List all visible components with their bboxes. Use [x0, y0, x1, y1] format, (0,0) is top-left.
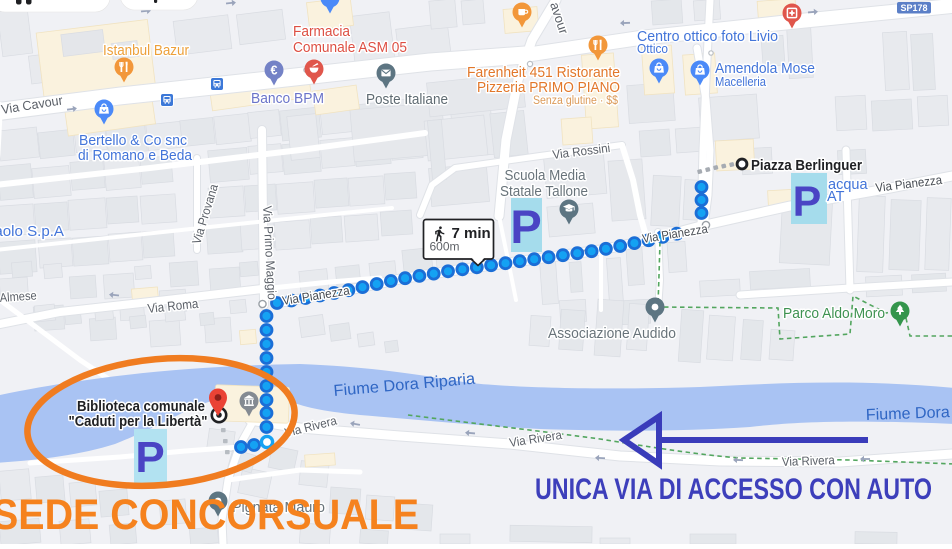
- svg-text:Parco Aldo Moro: Parco Aldo Moro: [783, 305, 885, 322]
- svg-text:Farmacia: Farmacia: [293, 24, 351, 40]
- svg-text:Via Rivera: Via Rivera: [782, 453, 835, 469]
- svg-text:Pizzeria PRIMO PIANO: Pizzeria PRIMO PIANO: [477, 80, 620, 96]
- svg-text:Farenheit 451 Ristorante: Farenheit 451 Ristorante: [467, 65, 620, 81]
- svg-text:Almese: Almese: [0, 288, 37, 305]
- svg-text:UNICA VIA DI ACCESSO CON AUTO: UNICA VIA DI ACCESSO CON AUTO: [535, 473, 932, 506]
- svg-text:Senza glutine · $$: Senza glutine · $$: [533, 95, 619, 107]
- svg-text:Macelleria: Macelleria: [715, 75, 766, 89]
- svg-text:paolo S.p.A: paolo S.p.A: [0, 223, 64, 240]
- svg-text:Istanbul Bazur: Istanbul Bazur: [103, 43, 189, 59]
- svg-text:Piazza Berlinguer: Piazza Berlinguer: [751, 158, 862, 174]
- svg-text:SP178: SP178: [900, 3, 927, 13]
- svg-text:Associazione Audido: Associazione Audido: [548, 326, 676, 342]
- svg-text:"Caduti per la Libertà": "Caduti per la Libertà": [69, 414, 208, 430]
- svg-text:Poste Italiane: Poste Italiane: [366, 91, 448, 108]
- svg-text:P: P: [135, 433, 164, 482]
- svg-text:AT: AT: [827, 189, 845, 205]
- svg-text:SEDE CONCORSUALE: SEDE CONCORSUALE: [0, 491, 419, 539]
- svg-text:Biblioteca comunale: Biblioteca comunale: [77, 399, 205, 415]
- svg-text:Fiume Dora: Fiume Dora: [866, 404, 951, 424]
- svg-text:Ottico: Ottico: [637, 42, 668, 56]
- svg-text:600m: 600m: [430, 240, 460, 254]
- svg-text:Scuola Media: Scuola Media: [505, 168, 587, 184]
- svg-text:Banco BPM: Banco BPM: [251, 90, 324, 107]
- svg-text:Comunale ASM 05: Comunale ASM 05: [293, 40, 407, 56]
- svg-text:P: P: [793, 178, 822, 226]
- svg-text:di Romano e Beda: di Romano e Beda: [78, 147, 193, 164]
- svg-text:P: P: [510, 200, 541, 253]
- svg-text:Statale Tallone: Statale Tallone: [500, 184, 588, 200]
- svg-text:€: €: [271, 63, 278, 77]
